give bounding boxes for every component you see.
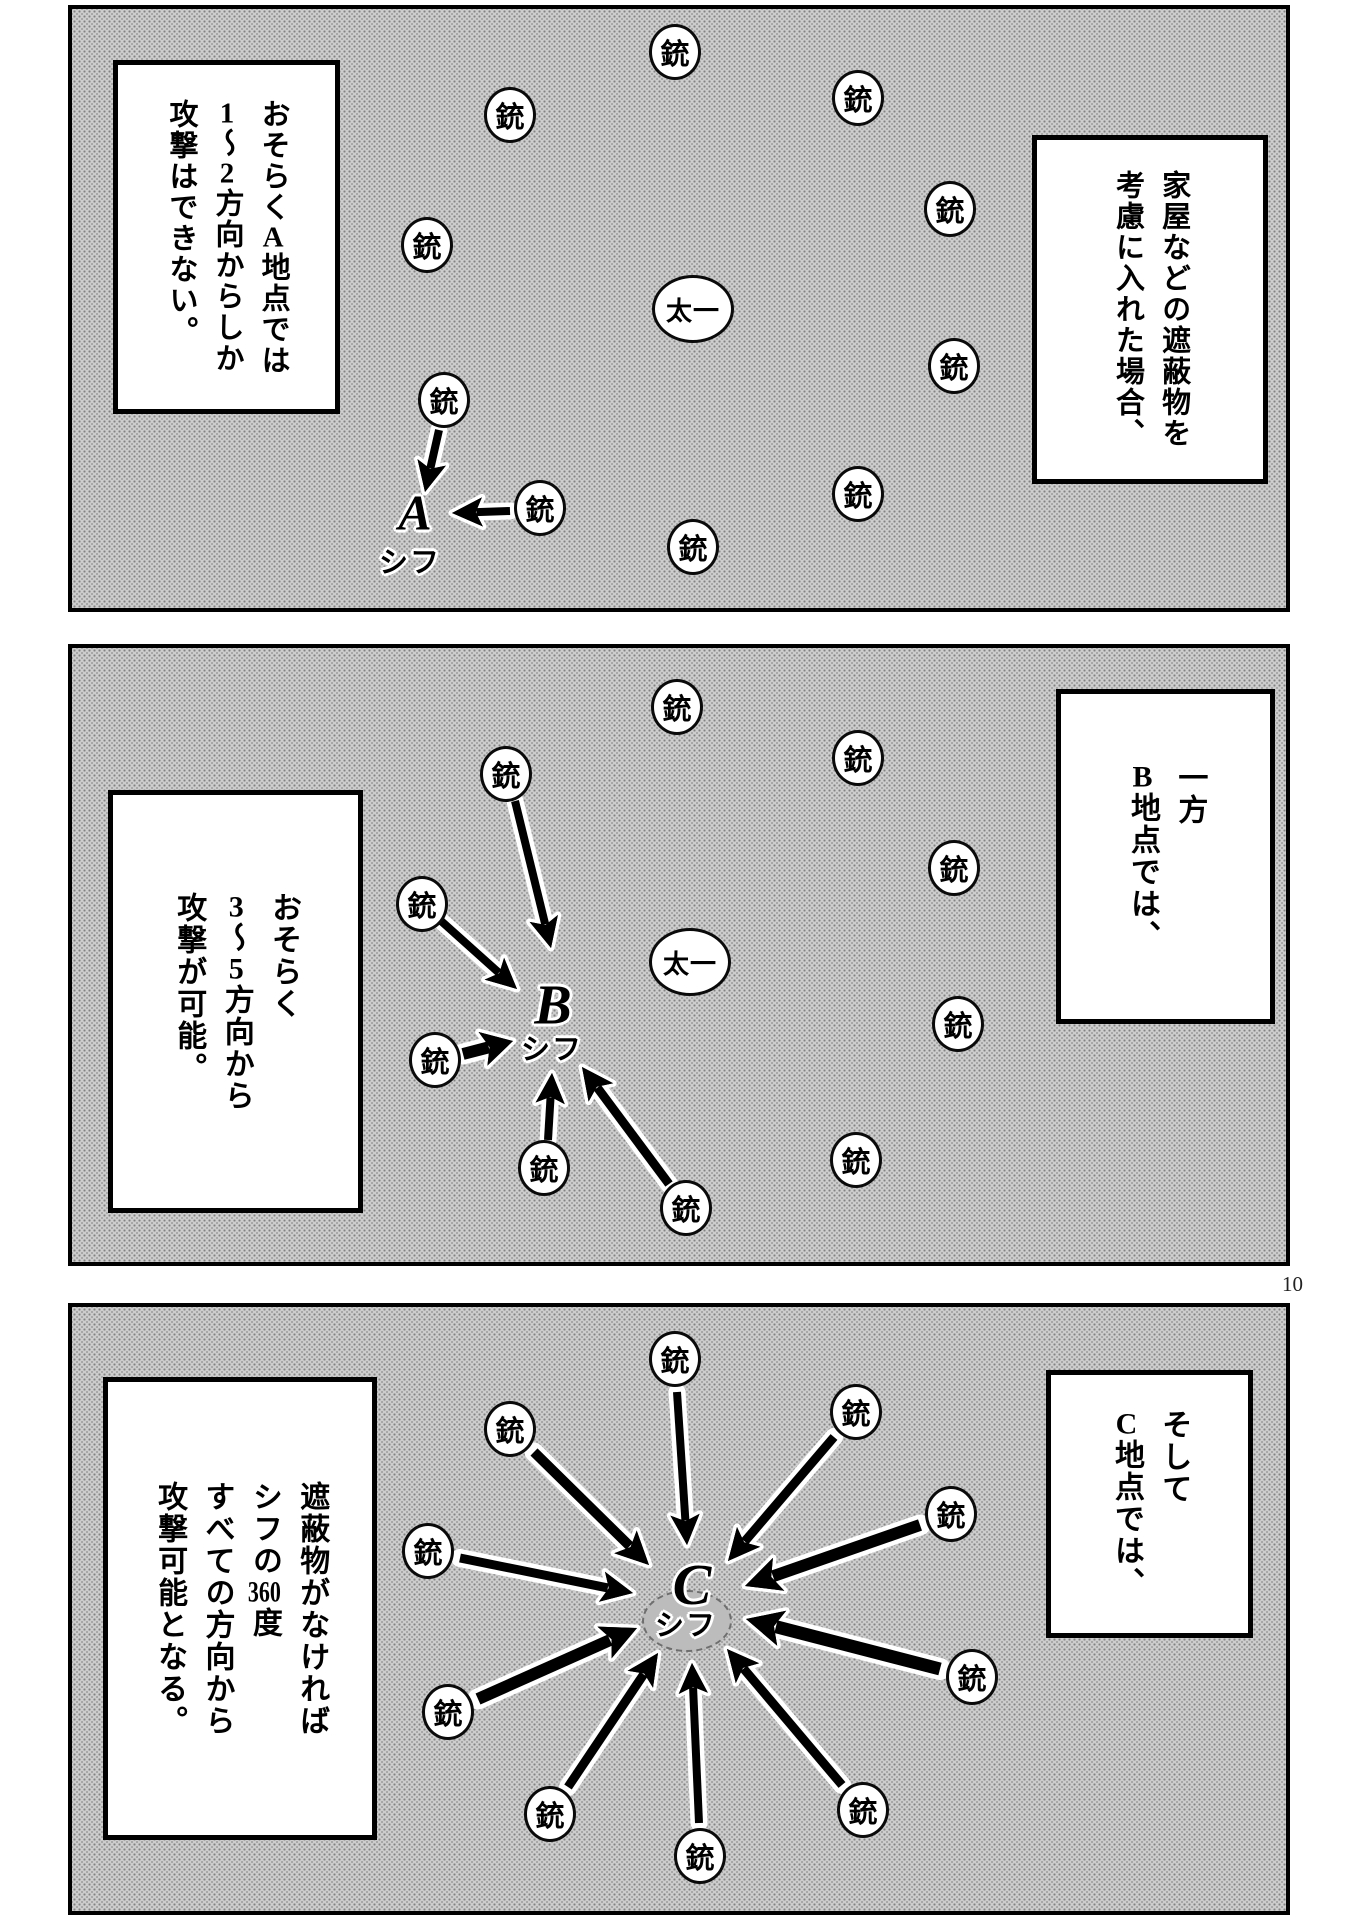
caption-box-right-panel-c: そしてC地点では、 [1046,1370,1253,1638]
gun-circle: 銃 [518,1140,570,1196]
caption-box-left-panel-a: おそらくA地点では1〜2方向からしか攻撃はできない。 [113,60,340,414]
caption-column: 遮蔽物がなければ [292,1481,330,1737]
caption-column: B地点では、 [1123,762,1161,952]
caption-column: 攻撃はできない。 [162,99,199,376]
gun-circle: 銃 [674,1828,726,1884]
caption-column: 1〜2方向からしか [208,99,245,376]
caption-box-left-panel-c: 遮蔽物がなければシフの360度すべての方向から攻撃可能となる。 [103,1377,377,1840]
upright-run: 5 [220,954,253,984]
gun-circle: 銃 [832,70,884,126]
gun-circle: 銃 [480,746,532,802]
gun-circle: 銃 [401,217,453,273]
upright-run: 3 [220,892,253,922]
gun-circle: 銃 [924,181,976,237]
gun-circle: 銃 [832,730,884,786]
gun-circle: 銃 [837,1782,889,1838]
gun-circle: 銃 [928,338,980,394]
caption-column: 家屋などの遮蔽物を [1155,170,1192,449]
upright-run: C [1110,1409,1143,1439]
caption-column: シフの360度 [245,1481,283,1737]
gun-circle: 銃 [932,996,984,1052]
gun-circle: 銃 [928,840,980,896]
gun-circle: 銃 [649,1331,701,1387]
caption-column: 攻撃可能となる。 [150,1481,188,1737]
gun-circle: 銃 [925,1486,977,1542]
caption-column: 3〜5方向から [216,892,254,1112]
gun-circle: 銃 [649,24,701,80]
upright-run: 1 [211,99,243,128]
upright-run: B [1126,762,1159,792]
caption-column: 攻撃が可能。 [169,892,207,1112]
caption-vertical-text: おそらく3〜5方向から攻撃が可能。 [160,892,311,1112]
caption-column: そして [1154,1409,1192,1599]
gun-circle: 銃 [402,1523,454,1579]
upright-run: 2 [211,159,243,188]
gun-circle: 銃 [514,480,566,536]
caption-vertical-text: おそらくA地点では1〜2方向からしか攻撃はできない。 [153,99,300,376]
caption-box-left-panel-b: おそらく3〜5方向から攻撃が可能。 [108,790,363,1213]
page-number: 10 [1282,1272,1303,1297]
caption-column: 一方 [1170,762,1208,952]
gun-circle: 銃 [946,1649,998,1705]
gun-circle: 銃 [830,1132,882,1188]
gun-circle: 銃 [396,876,448,932]
gun-circle: 銃 [484,87,536,143]
gun-circle: 銃 [832,466,884,522]
gun-circle: 銃 [667,519,719,575]
taichi-circle: 太一 [649,928,731,996]
caption-vertical-text: 遮蔽物がなければシフの360度すべての方向から攻撃可能となる。 [141,1481,340,1737]
caption-vertical-text: 家屋などの遮蔽物を考慮に入れた場合、 [1099,170,1200,449]
shifu-label: シフ [655,1602,717,1644]
shifu-label: シフ [379,539,441,581]
caption-vertical-text: 一方B地点では、 [1114,762,1218,952]
shifu-label: シフ [521,1026,583,1068]
gun-circle: 銃 [409,1032,461,1088]
caption-box-right-panel-a: 家屋などの遮蔽物を考慮に入れた場合、 [1032,135,1268,484]
gun-circle: 銃 [484,1401,536,1457]
upright-run: A [257,223,289,252]
gun-circle: 銃 [830,1384,882,1440]
point-label-a: A [398,484,431,542]
upright-run: 360 [248,1577,281,1607]
caption-column: すべての方向から [197,1481,235,1737]
taichi-circle: 太一 [652,275,734,343]
caption-vertical-text: そしてC地点では、 [1098,1409,1202,1599]
caption-column: おそらくA地点では [254,99,291,376]
gun-circle: 銃 [418,372,470,428]
caption-box-right-panel-b: 一方B地点では、 [1056,689,1275,1024]
gun-circle: 銃 [524,1786,576,1842]
caption-column: C地点では、 [1107,1409,1145,1599]
manga-page: 銃銃銃銃銃銃銃銃銃銃太一Aシフ家屋などの遮蔽物を考慮に入れた場合、おそらくA地点… [0,0,1359,1920]
gun-circle: 銃 [651,679,703,735]
gun-circle: 銃 [422,1684,474,1740]
caption-column: 考慮に入れた場合、 [1108,170,1145,449]
gun-circle: 銃 [660,1180,712,1236]
caption-column: おそらく [264,892,302,1112]
